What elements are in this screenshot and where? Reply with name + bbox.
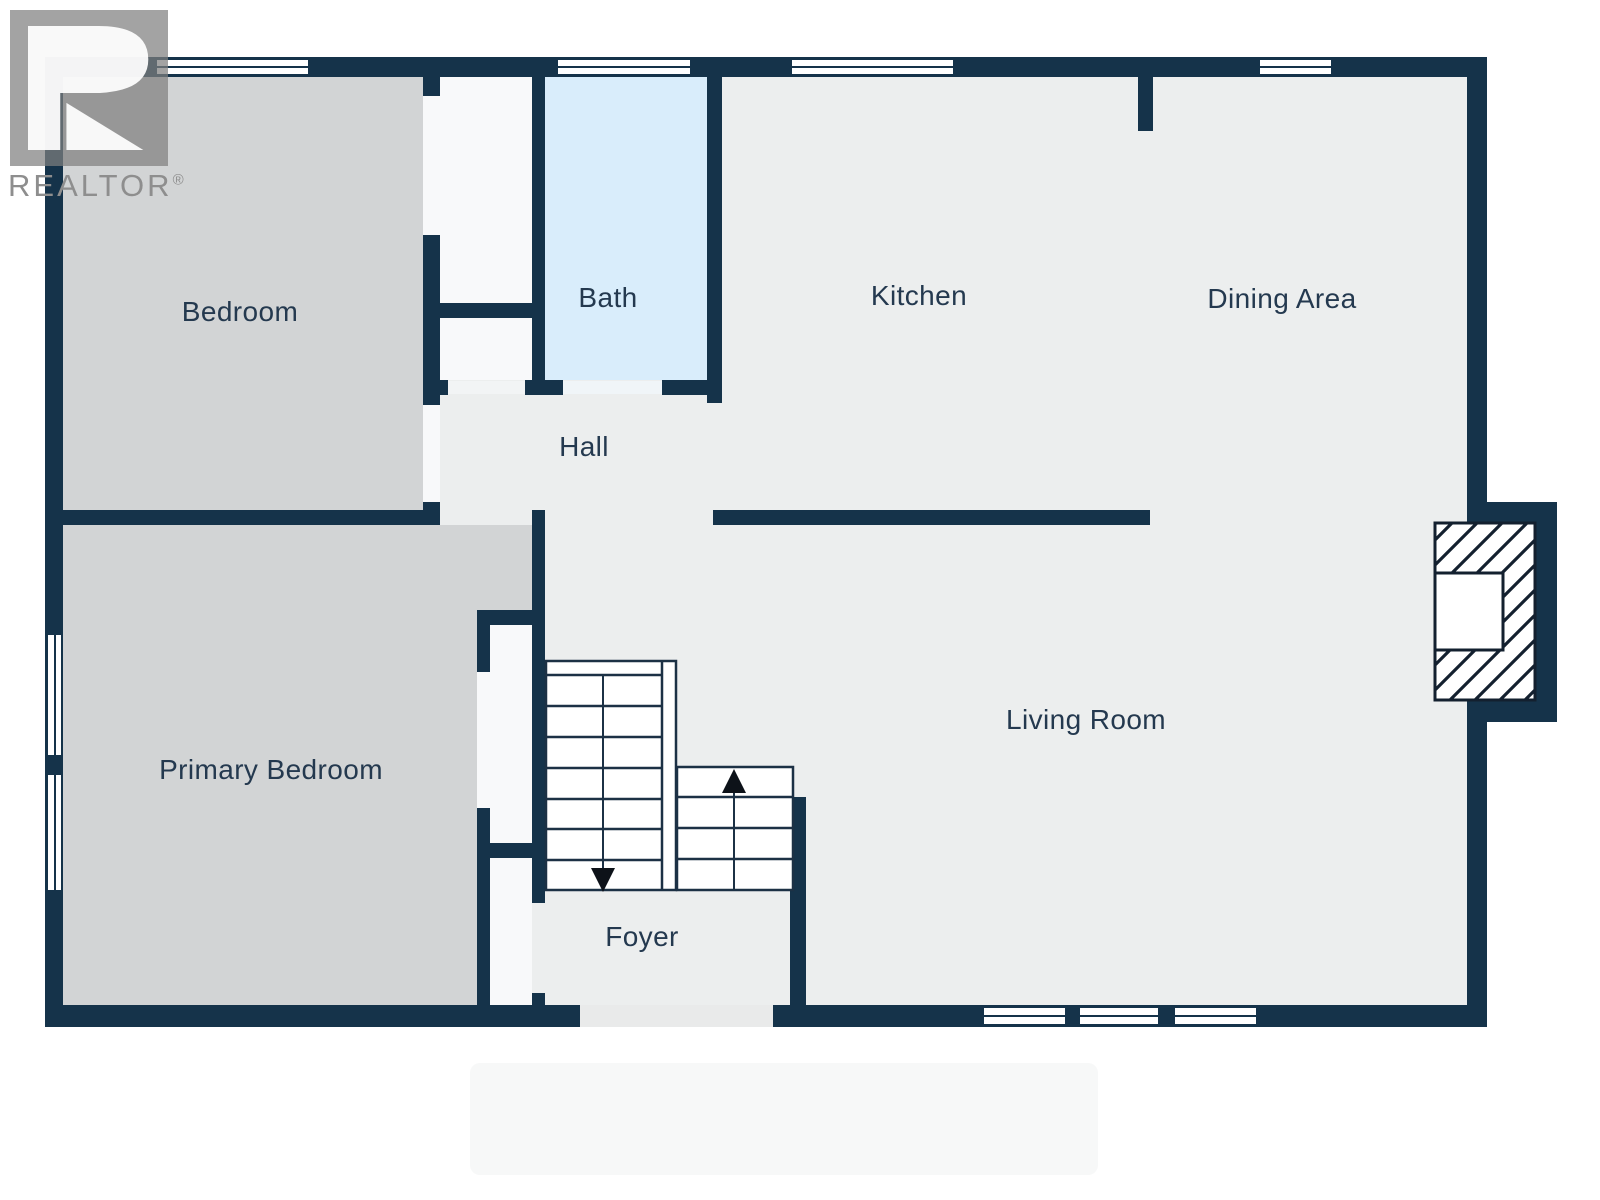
floor-plan-canvas: Bedroom Bath Kitchen Dining Area Hall Pr… (0, 0, 1600, 1200)
wall-foyer-closet-stub (532, 993, 545, 1007)
primary-closet-floor (490, 625, 532, 843)
door-opening-closet-top (423, 96, 440, 235)
window-living-bottom-2 (1078, 1006, 1160, 1026)
room-label-bath: Bath (578, 282, 637, 314)
wall-bedroom-right-top (423, 77, 440, 96)
closet-top-floor (440, 77, 532, 303)
window-kitchen-top (790, 58, 955, 76)
window-bath-top (556, 58, 692, 76)
wall-closet-divider (433, 303, 533, 318)
window-primary-left-1 (46, 633, 63, 757)
window-living-bottom-1 (982, 1006, 1067, 1026)
wall-primary-closet-south (477, 843, 532, 858)
room-label-dining-area: Dining Area (1207, 283, 1356, 315)
realtor-wordmark-text: REALTOR (8, 168, 173, 203)
room-label-living-room: Living Room (1006, 704, 1166, 736)
realtor-logo (10, 10, 168, 166)
foyer-closet-floor (490, 858, 532, 1005)
wall-bedroom-right-bottom (423, 502, 440, 525)
watermark (470, 1063, 1098, 1175)
chimney-bump (1467, 502, 1557, 722)
door-opening-primary-closet (477, 672, 490, 808)
wall-bedroom-divider (60, 510, 440, 525)
window-dining-top (1258, 58, 1333, 76)
registered-mark: ® (173, 172, 184, 189)
wall-foyer-east (790, 797, 806, 1007)
window-bedroom-top (155, 58, 310, 76)
room-label-primary-bedroom: Primary Bedroom (159, 754, 383, 786)
door-opening-bath (563, 381, 662, 394)
wall-foyer-closet-west (477, 858, 490, 1005)
entry-door-opening (580, 1005, 773, 1027)
realtor-r-logo-icon (28, 25, 152, 151)
door-opening-closet-bottom (448, 381, 525, 394)
wall-closet-south-stub (433, 380, 448, 395)
bath-floor (545, 77, 707, 380)
wall-primary-closet-west-top (477, 610, 490, 672)
realtor-wordmark: REALTOR® (8, 168, 228, 204)
room-label-foyer: Foyer (605, 921, 679, 953)
room-label-bedroom: Bedroom (182, 296, 298, 328)
wall-stair-hall-west (532, 510, 545, 903)
room-label-hall: Hall (559, 431, 609, 463)
room-label-kitchen: Kitchen (871, 280, 967, 312)
closet-bottom-floor (440, 318, 532, 380)
door-opening-bedroom (423, 405, 440, 502)
window-living-bottom-3 (1173, 1006, 1258, 1026)
wall-bath-south-left (525, 380, 563, 395)
window-primary-left-2 (46, 773, 63, 892)
wall-kitchen-dining-stub (1138, 77, 1153, 131)
wall-bath-east (707, 77, 722, 403)
wall-bath-west (532, 77, 545, 380)
wall-kitchen-living-half (713, 510, 1150, 525)
